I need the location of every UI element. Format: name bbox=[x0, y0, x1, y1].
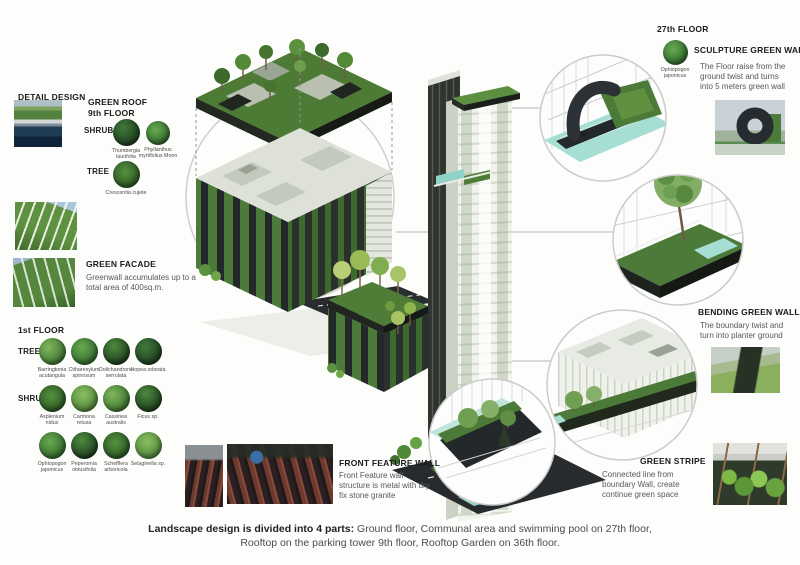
plant-label: Carmona retusa bbox=[66, 414, 102, 427]
plant-photo bbox=[146, 121, 170, 145]
plant-ophiopogon-row: Ophiopogon japonicus bbox=[34, 432, 70, 474]
plant-label: Dolichandrone serrulata bbox=[98, 367, 134, 380]
plant-photo bbox=[39, 432, 66, 459]
green-facade-photo-2 bbox=[13, 258, 75, 307]
callout-circle-bending-wall bbox=[610, 159, 750, 312]
plant-crescentia: Crescentia cujete bbox=[104, 161, 148, 196]
plant-photo bbox=[103, 338, 130, 365]
sculpture-wall-description: The Floor raise from the ground twist an… bbox=[700, 62, 790, 92]
plant-photo bbox=[113, 161, 140, 188]
callout-circle-sculpture bbox=[539, 54, 670, 184]
callout-circle-green-stripe-building bbox=[544, 308, 722, 464]
plant-citharexylum: Citharexylum spinosum bbox=[66, 338, 102, 380]
plant-photo bbox=[71, 432, 98, 459]
plant-photo bbox=[71, 338, 98, 365]
sculpture-arch-graphic bbox=[715, 100, 785, 155]
plant-photo bbox=[71, 385, 98, 412]
feature-wall-photo-1 bbox=[185, 445, 223, 507]
green-stripe-title: GREEN STRIPE bbox=[640, 456, 706, 466]
plant-label: Asplenium nidus bbox=[34, 414, 70, 427]
caption-line1-rest: Ground floor, Communal area and swimming… bbox=[354, 523, 652, 535]
plant-barringtonia: Barringtonia acutangula bbox=[34, 338, 70, 380]
bending-wall-description: The boundary twist and turn into planter… bbox=[700, 321, 790, 341]
parking-podium bbox=[196, 128, 392, 312]
podium-annex bbox=[327, 250, 428, 392]
plant-photo bbox=[103, 385, 130, 412]
plant-ophiopogon-27: Ophiopogon japonicus bbox=[653, 40, 697, 80]
green-roof-title-line1: GREEN ROOF bbox=[88, 97, 147, 107]
caption: Landscape design is divided into 4 parts… bbox=[90, 522, 710, 550]
feature-wall-title: FRONT FEATURE WALL bbox=[339, 458, 440, 468]
plant-label: Selaginella sp. bbox=[130, 461, 166, 467]
green-facade-title: GREEN FACADE bbox=[86, 259, 156, 269]
green-stripe-description: Connected line from boundary Wall, creat… bbox=[602, 470, 697, 500]
plant-carmona: Carmona retusa bbox=[66, 385, 102, 427]
caption-lead: Landscape design is divided into 4 parts… bbox=[148, 523, 354, 535]
plant-asplenium: Asplenium nidus bbox=[34, 385, 70, 427]
sculpture-wall-title: SCULPTURE GREEN WALL bbox=[694, 45, 800, 55]
plant-peperomia: Peperomia obtusifolia bbox=[66, 432, 102, 474]
poster: DETAIL DESIGN GREEN ROOF 9th FLOOR SHRUB… bbox=[0, 0, 800, 565]
caption-line2: Rooftop on the parking tower 9th floor, … bbox=[90, 536, 710, 550]
feature-wall-photo-2 bbox=[227, 444, 333, 504]
plant-label: Hopea odorata bbox=[130, 367, 166, 373]
plant-photo bbox=[135, 385, 162, 412]
plant-ficus: Ficus sp. bbox=[130, 385, 166, 420]
bending-wall-title: BENDING GREEN WALL bbox=[698, 307, 800, 317]
plant-dolichandrone: Dolichandrone serrulata bbox=[98, 338, 134, 380]
plant-photo bbox=[663, 40, 688, 65]
plant-photo bbox=[135, 432, 162, 459]
sculpture-wall-photo bbox=[715, 100, 785, 155]
green-facade-photo-1 bbox=[15, 202, 77, 250]
plant-label: Crescentia cujete bbox=[104, 190, 148, 196]
green-roof-title-line2: 9th FLOOR bbox=[88, 108, 135, 118]
detail-design-photo bbox=[14, 100, 62, 147]
plant-phyllanthus: Phyllanthus myrtifolius Moon bbox=[136, 121, 180, 160]
plant-label: Ophiopogon japonicus bbox=[34, 461, 70, 474]
plant-label: Schefflera arboricola bbox=[98, 461, 134, 474]
plant-photo bbox=[135, 338, 162, 365]
plant-photo bbox=[39, 338, 66, 365]
plant-label: Ficus sp. bbox=[130, 414, 166, 420]
plant-schefflera: Schefflera arboricola bbox=[98, 432, 134, 474]
plant-label: Ophiopogon japonicus bbox=[653, 67, 697, 80]
plant-cassinea: Cassinea australis bbox=[98, 385, 134, 427]
bending-wall-photo bbox=[711, 347, 780, 393]
plant-label: Citharexylum spinosum bbox=[66, 367, 102, 380]
plant-label: Phyllanthus myrtifolius Moon bbox=[136, 147, 180, 160]
green-stripe-photo bbox=[713, 443, 787, 505]
plant-selaginella: Selaginella sp. bbox=[130, 432, 166, 467]
green-facade-description: Greenwall accumulates up to a total area… bbox=[86, 273, 198, 293]
plant-hopea: Hopea odorata bbox=[130, 338, 166, 373]
plant-photo bbox=[39, 385, 66, 412]
plant-label: Cassinea australis bbox=[98, 414, 134, 427]
first-floor-title: 1st FLOOR bbox=[18, 325, 64, 335]
plant-label: Barringtonia acutangula bbox=[34, 367, 70, 380]
caption-line1: Landscape design is divided into 4 parts… bbox=[90, 522, 710, 536]
feature-wall-description: Front Feature wall structure is metal wi… bbox=[339, 471, 434, 501]
plant-photo bbox=[103, 432, 130, 459]
plant-label: Peperomia obtusifolia bbox=[66, 461, 102, 474]
floor27-title: 27th FLOOR bbox=[657, 24, 709, 34]
